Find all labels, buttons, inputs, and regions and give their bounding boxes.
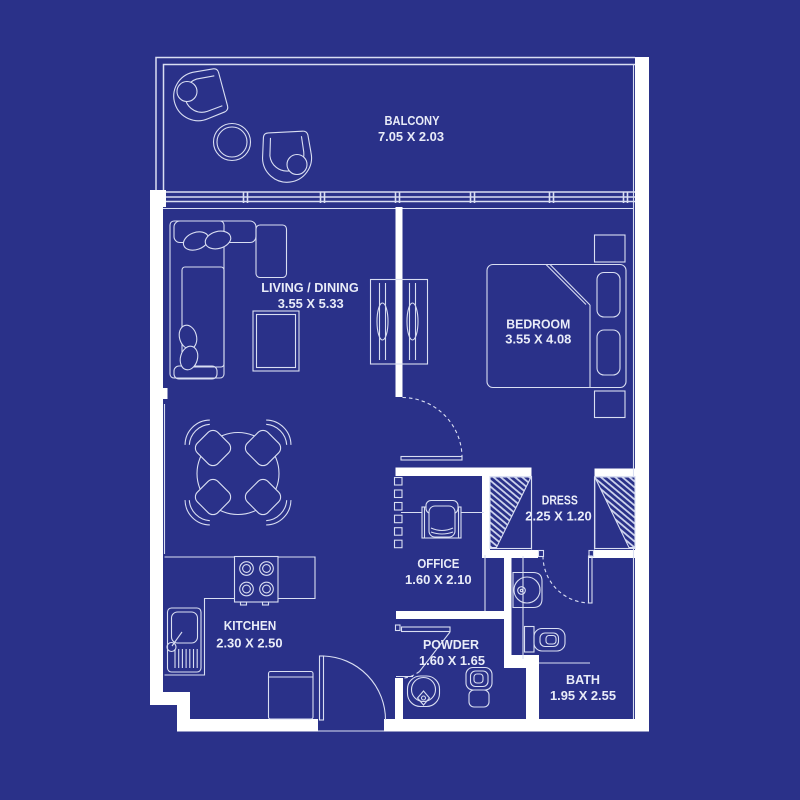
svg-text:3.55 X 4.08: 3.55 X 4.08 (505, 332, 571, 347)
svg-text:1.60 X 1.65: 1.60 X 1.65 (419, 653, 485, 668)
svg-text:7.05 X 2.03: 7.05 X 2.03 (378, 129, 444, 144)
svg-text:2.30 X 2.50: 2.30 X 2.50 (216, 636, 282, 651)
svg-text:2.25 X 1.20: 2.25 X 1.20 (525, 509, 592, 524)
svg-text:1.60 X 2.10: 1.60 X 2.10 (405, 572, 472, 587)
svg-text:LIVING / DINING: LIVING / DINING (261, 281, 359, 295)
svg-text:POWDER: POWDER (423, 638, 479, 652)
svg-text:KITCHEN: KITCHEN (224, 619, 277, 633)
svg-text:DRESS: DRESS (542, 493, 578, 507)
svg-text:3.55 X 5.33: 3.55 X 5.33 (278, 296, 344, 311)
svg-text:BALCONY: BALCONY (385, 114, 441, 128)
svg-text:BATH: BATH (566, 673, 600, 687)
svg-text:1.95 X 2.55: 1.95 X 2.55 (550, 688, 616, 703)
svg-text:BEDROOM: BEDROOM (506, 318, 570, 332)
svg-text:OFFICE: OFFICE (417, 557, 459, 571)
